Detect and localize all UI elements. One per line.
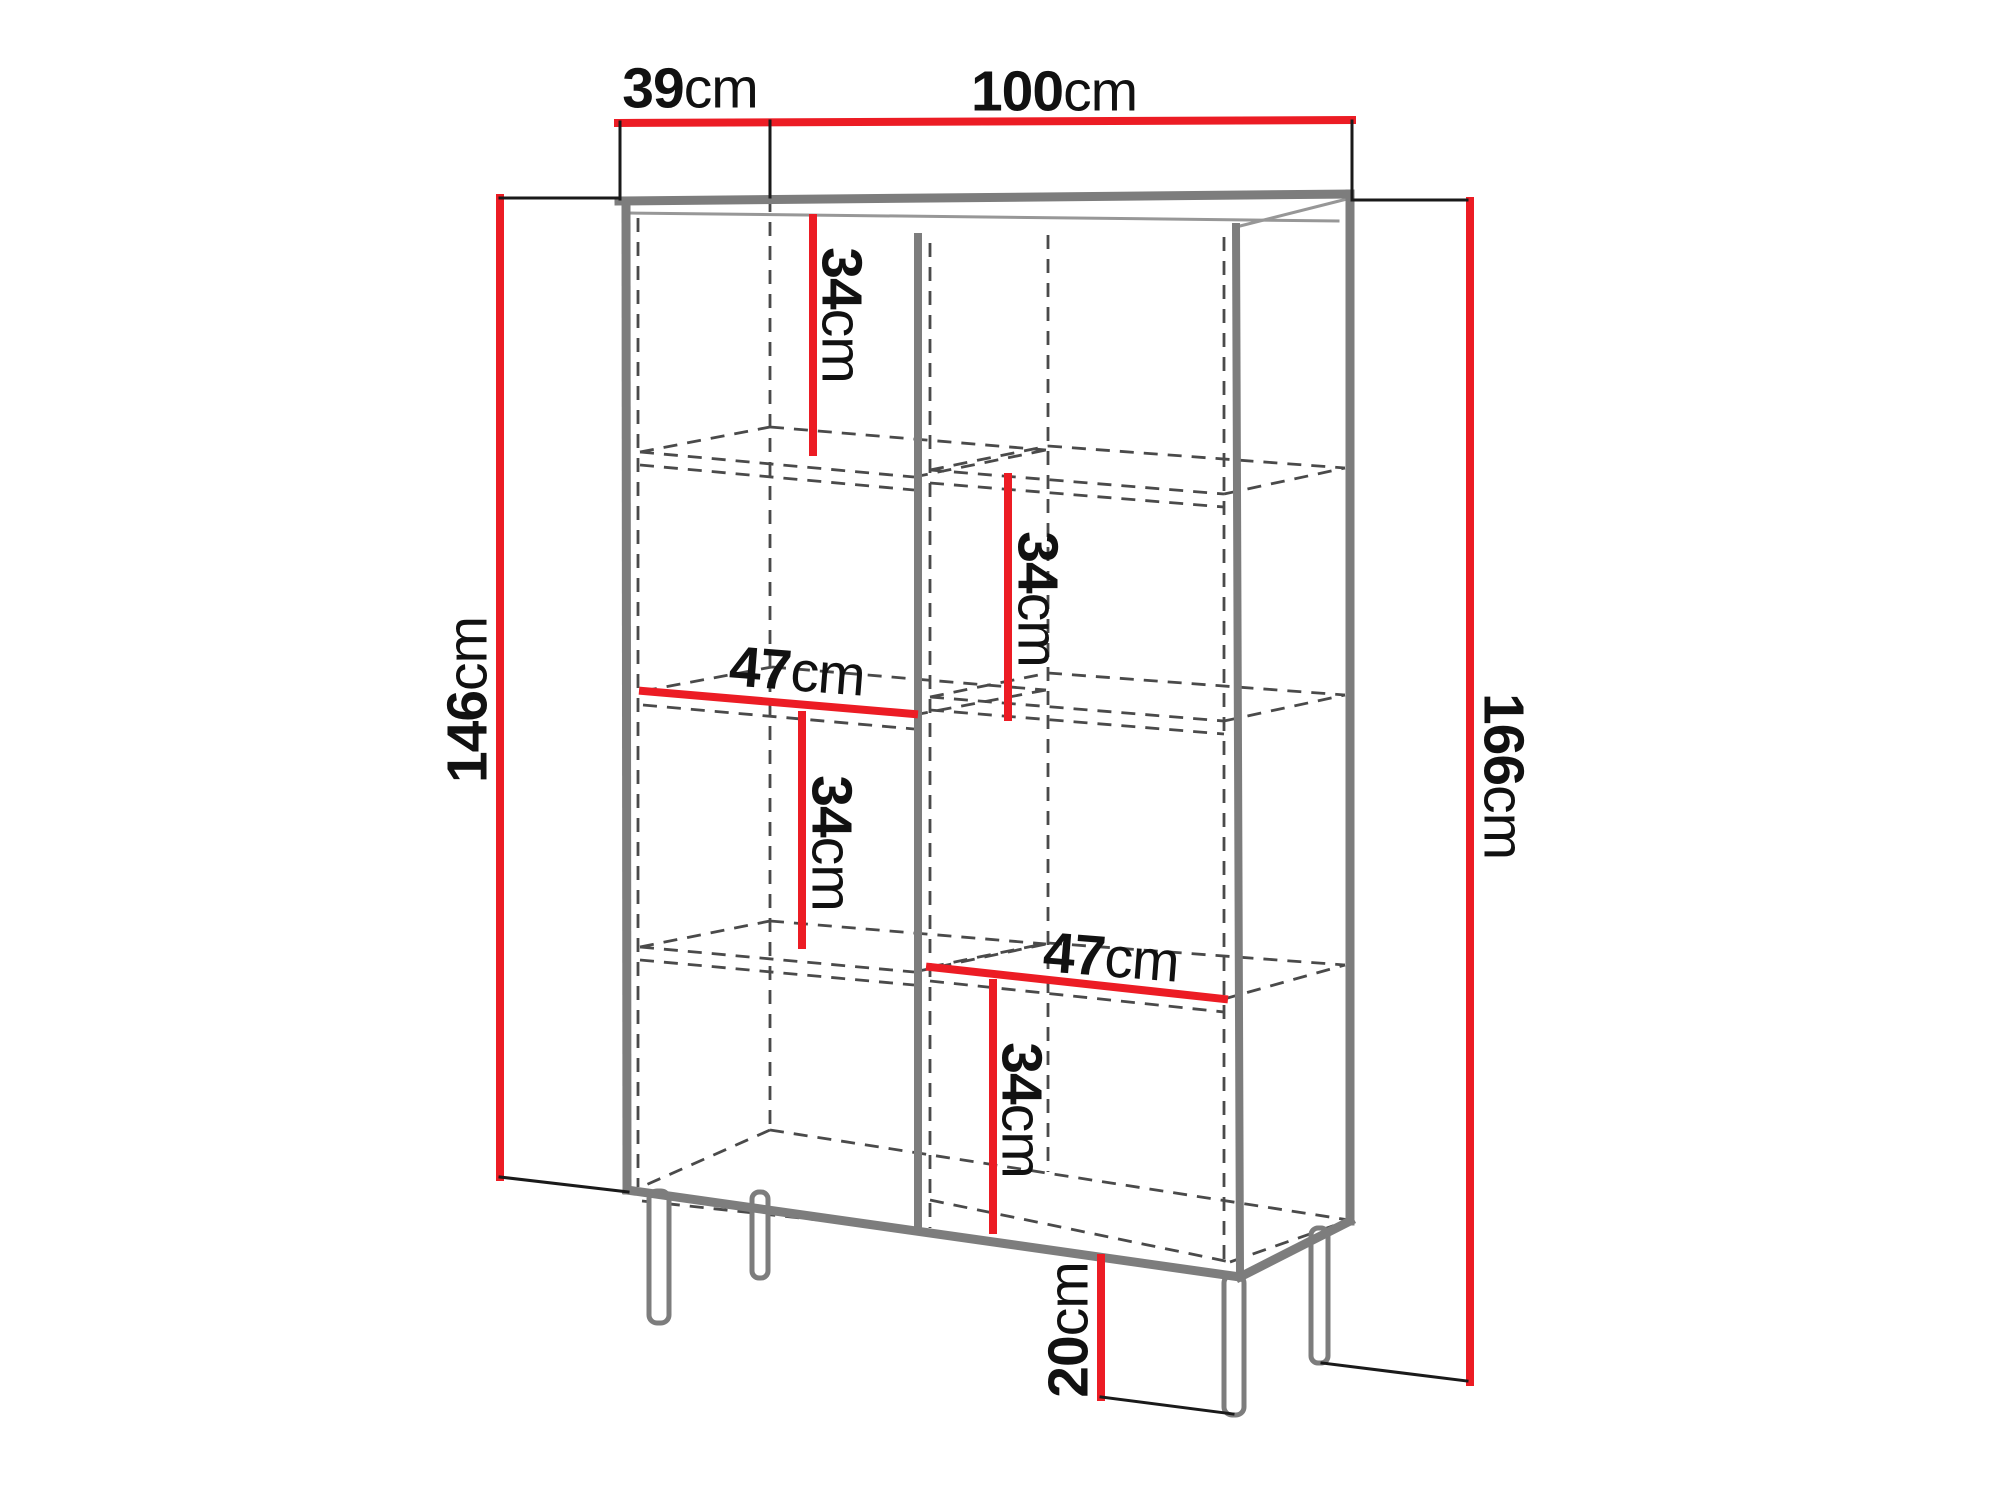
shelf-hidden-edge (930, 483, 1224, 507)
top-back-edge (619, 194, 1350, 201)
shelf-hidden-edge (930, 710, 1224, 734)
dim-unit: cm (788, 639, 867, 709)
cabinet-line-art (0, 0, 2000, 1499)
dim-label-shelf-width-left: 47cm (727, 638, 866, 705)
extension-lines (500, 121, 1467, 1414)
leg-front-right (1224, 1275, 1244, 1415)
dim-unit: cm (1063, 60, 1137, 124)
dim-label-shelf-width-right: 47cm (1041, 924, 1180, 991)
dim-unit: cm (800, 837, 864, 911)
leg-front-left (649, 1191, 669, 1323)
dim-unit: cm (436, 617, 500, 691)
dim-unit: cm (1102, 925, 1181, 995)
bottom-back-edge (770, 1130, 1349, 1220)
dimension-diagram: 39cm 100cm 146cm 166cm 20cm 34cm 47cm 34… (0, 0, 2000, 1499)
dim-unit: cm (1472, 785, 1536, 859)
dim-value: 146 (436, 691, 500, 783)
dim-value: 20 (1037, 1336, 1101, 1397)
dim-unit: cm (1006, 593, 1070, 667)
dim-label-gap-right-upper: 34cm (1009, 531, 1066, 666)
bottom-right-edge (1240, 1221, 1350, 1277)
shelf-hidden-edge (640, 947, 914, 972)
shelf-hidden-edge (930, 470, 1224, 494)
dim-value: 34 (990, 1042, 1054, 1103)
extension-floor-right (1322, 1363, 1467, 1381)
extension-floor-left (1101, 1397, 1233, 1414)
dim-value: 47 (1041, 920, 1107, 989)
legs (649, 1191, 1328, 1415)
dim-value: 39 (622, 57, 683, 121)
dim-value: 34 (800, 775, 864, 836)
shelf-hidden-edge (1224, 695, 1345, 721)
bottom-back-left-diagonal (639, 1130, 770, 1188)
dim-value: 166 (1472, 693, 1536, 785)
dim-value: 34 (810, 247, 874, 308)
shelf-hidden-edge (930, 697, 1224, 721)
shelf-hidden-edge (1048, 673, 1345, 695)
shelf-hidden-edge (640, 465, 914, 490)
dim-label-width: 100cm (971, 64, 1137, 121)
dim-label-gap-left-middle: 34cm (803, 775, 860, 910)
dim-label-gap-left-top: 34cm (813, 247, 870, 382)
top-right-side-edge (1236, 199, 1347, 227)
dim-label-gap-right-lower: 34cm (993, 1042, 1050, 1177)
shelf-hidden-edge (930, 943, 1048, 967)
shelf-hidden-edge (640, 960, 914, 985)
dim-unit: cm (1037, 1262, 1101, 1336)
dim-unit: cm (810, 309, 874, 383)
shelf-hidden-edge (640, 452, 914, 477)
shelf-hidden-edge (640, 427, 770, 452)
extension-body-height-bottom (500, 1177, 628, 1192)
dimension-lines (500, 120, 1470, 1397)
cabinet-edges (619, 194, 1350, 1277)
shelf-hidden-edge (1048, 446, 1345, 468)
dim-unit: cm (990, 1104, 1054, 1178)
shelf-hidden-edge (930, 446, 1048, 470)
dim-label-depth: 39cm (622, 61, 757, 118)
dim-label-total-height: 166cm (1475, 693, 1532, 859)
dim-value: 47 (727, 634, 793, 703)
dim-label-leg-height: 20cm (1041, 1262, 1098, 1397)
left-front-edge (626, 206, 627, 1190)
top-front-edge (629, 213, 1338, 221)
dim-unit: cm (684, 57, 758, 121)
dim-value: 34 (1006, 531, 1070, 592)
leg-back-right (1311, 1228, 1328, 1363)
shelf-hidden-edge (1224, 468, 1345, 494)
right-front-edge (1236, 227, 1240, 1275)
bottom-front-edge (627, 1190, 1240, 1277)
shelf-hidden-edge (930, 673, 1048, 697)
shelf-hidden-edge (770, 921, 1046, 944)
dim-label-body-height: 146cm (440, 617, 497, 783)
shelf-hidden-edge (640, 921, 770, 947)
dim-value: 100 (971, 60, 1063, 124)
